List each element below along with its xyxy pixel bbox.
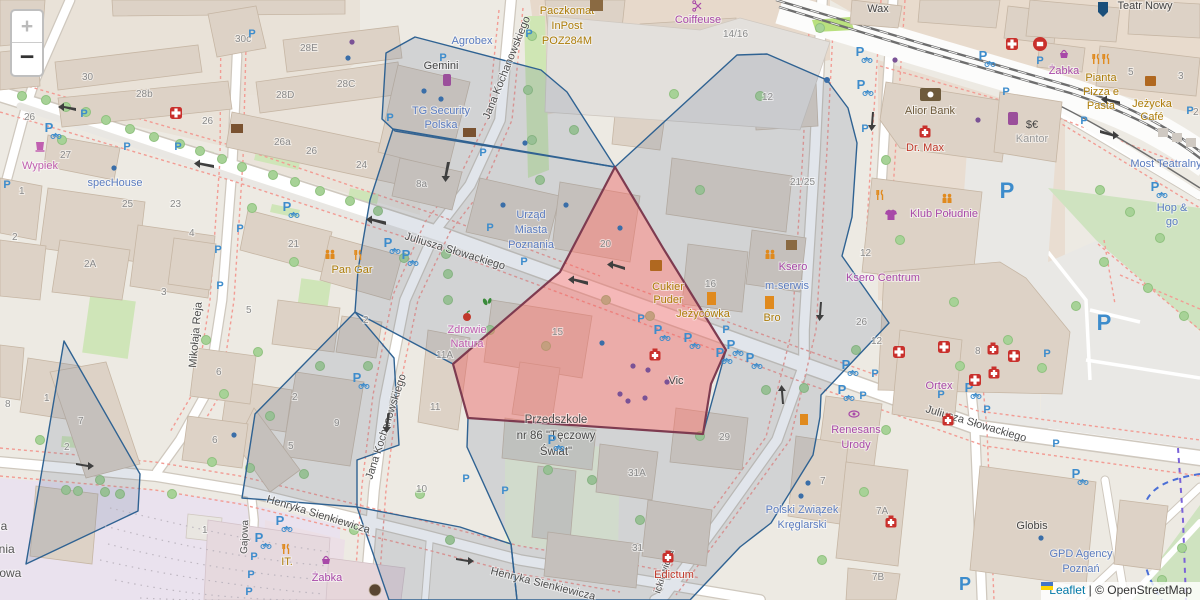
svg-text:Miasta: Miasta	[515, 224, 548, 236]
svg-text:Coiffeuse: Coiffeuse	[675, 14, 721, 26]
svg-text:Kantor: Kantor	[1016, 133, 1049, 145]
svg-text:na: na	[0, 519, 8, 533]
svg-text:5: 5	[246, 305, 252, 316]
svg-text:2: 2	[292, 392, 298, 403]
svg-text:28E: 28E	[300, 43, 318, 54]
svg-text:Edictum: Edictum	[654, 569, 694, 581]
svg-text:Polski Związek: Polski Związek	[766, 504, 839, 516]
svg-text:1: 1	[19, 186, 25, 197]
svg-text:TG Security: TG Security	[412, 105, 471, 117]
svg-text:1: 1	[202, 525, 208, 536]
svg-text:3: 3	[161, 287, 167, 298]
svg-text:IT.: IT.	[281, 556, 293, 568]
svg-text:9: 9	[334, 418, 340, 429]
svg-text:Żabka: Żabka	[1049, 64, 1080, 77]
svg-text:Natura: Natura	[450, 338, 484, 350]
svg-text:16: 16	[705, 279, 717, 290]
svg-text:24: 24	[356, 160, 368, 171]
svg-text:Żabka: Żabka	[312, 571, 343, 584]
svg-text:2: 2	[12, 232, 18, 243]
svg-text:Globis: Globis	[1016, 520, 1048, 532]
svg-text:7: 7	[820, 476, 826, 487]
svg-text:Paczkomat: Paczkomat	[540, 5, 594, 17]
svg-text:29: 29	[719, 432, 731, 443]
svg-text:Pianta: Pianta	[1085, 72, 1117, 84]
svg-text:8: 8	[975, 346, 981, 357]
svg-text:Alior Bank: Alior Bank	[905, 105, 956, 117]
svg-text:Most Teatralny: Most Teatralny	[1130, 158, 1200, 170]
svg-text:28b: 28b	[136, 89, 153, 100]
svg-text:Ksero: Ksero	[779, 261, 808, 273]
svg-text:25: 25	[122, 199, 134, 210]
svg-text:11: 11	[430, 402, 441, 413]
svg-text:26a: 26a	[274, 137, 291, 148]
svg-text:Kręglarski: Kręglarski	[778, 519, 827, 531]
svg-text:10: 10	[416, 484, 428, 495]
svg-text:12: 12	[860, 248, 872, 259]
svg-text:Urząd: Urząd	[516, 209, 545, 221]
svg-text:21/25: 21/25	[790, 177, 815, 188]
svg-text:26: 26	[306, 146, 318, 157]
svg-text:Poznań: Poznań	[1062, 563, 1099, 575]
svg-text:2: 2	[363, 315, 369, 326]
svg-text:Przedszkole: Przedszkole	[525, 414, 588, 426]
svg-text:2: 2	[64, 442, 70, 453]
svg-text:Bro: Bro	[763, 312, 780, 324]
svg-text:8: 8	[5, 399, 11, 410]
svg-text:P: P	[1000, 178, 1015, 203]
svg-text:12: 12	[871, 336, 883, 347]
svg-text:m-serwis: m-serwis	[765, 280, 809, 292]
svg-text:7B: 7B	[872, 572, 885, 583]
svg-text:20: 20	[600, 239, 612, 250]
svg-text:Hop &: Hop &	[1157, 202, 1188, 214]
svg-text:P: P	[959, 574, 971, 594]
svg-text:14/16: 14/16	[723, 29, 748, 40]
svg-text:Cukier: Cukier	[652, 281, 684, 293]
svg-text:26: 26	[856, 317, 868, 328]
svg-text:5: 5	[288, 441, 294, 452]
svg-text:4: 4	[189, 228, 195, 239]
svg-text:7A: 7A	[876, 506, 889, 517]
svg-text:Teatr Nowy: Teatr Nowy	[1117, 0, 1173, 12]
svg-text:dnia: dnia	[0, 542, 15, 556]
svg-text:Pizza e: Pizza e	[1083, 86, 1119, 98]
svg-text:26: 26	[202, 116, 214, 127]
svg-text:5: 5	[1128, 67, 1134, 78]
svg-text:26: 26	[24, 112, 36, 123]
svg-text:Jeżycówka: Jeżycówka	[676, 308, 731, 320]
svg-text:$€: $€	[1026, 119, 1038, 131]
svg-text:30: 30	[82, 72, 94, 83]
svg-text:7: 7	[78, 416, 84, 427]
svg-text:31A: 31A	[628, 468, 646, 479]
svg-text:2: 2	[1193, 107, 1199, 118]
svg-text:Gajowa: Gajowa	[239, 519, 251, 554]
svg-text:Puder: Puder	[653, 294, 683, 306]
svg-text:27: 27	[60, 150, 72, 161]
svg-text:28D: 28D	[276, 90, 294, 101]
svg-text:Pan Gar: Pan Gar	[332, 264, 373, 276]
svg-text:6: 6	[216, 367, 222, 378]
svg-text:11A: 11A	[436, 350, 453, 361]
svg-text:Renesans: Renesans	[831, 424, 881, 436]
svg-text:1: 1	[44, 393, 50, 404]
svg-text:go: go	[1166, 216, 1178, 228]
svg-text:GPD Agency: GPD Agency	[1050, 548, 1113, 560]
svg-text:Dr. Max: Dr. Max	[906, 142, 944, 154]
svg-text:Ksero Centrum: Ksero Centrum	[846, 272, 920, 284]
svg-text:Poznania: Poznania	[508, 239, 555, 251]
svg-text:15: 15	[552, 327, 564, 338]
svg-text:23: 23	[170, 199, 182, 210]
svg-text:Zdrowie: Zdrowie	[447, 324, 486, 336]
svg-text:6: 6	[212, 435, 218, 446]
svg-text:Urody: Urody	[841, 439, 871, 451]
svg-text:3: 3	[1178, 71, 1184, 82]
svg-text:specHouse: specHouse	[87, 177, 142, 189]
svg-text:28C: 28C	[337, 79, 355, 90]
svg-text:P: P	[1097, 310, 1112, 335]
svg-text:ajowa: ajowa	[0, 566, 22, 580]
svg-text:Agrobex: Agrobex	[452, 35, 493, 47]
svg-text:Vic: Vic	[668, 375, 684, 387]
svg-text:31: 31	[632, 543, 644, 554]
svg-text:Wax: Wax	[867, 3, 889, 15]
svg-text:Polska: Polska	[424, 119, 458, 131]
svg-text:8a: 8a	[416, 179, 428, 190]
svg-text:21: 21	[288, 239, 300, 250]
svg-text:Wypiek: Wypiek	[22, 160, 58, 172]
svg-text:12: 12	[762, 92, 774, 103]
svg-text:InPost: InPost	[551, 20, 582, 32]
svg-text:2A: 2A	[84, 259, 97, 270]
svg-text:POZ284M: POZ284M	[542, 35, 592, 47]
svg-text:Klub Południe: Klub Południe	[910, 208, 978, 220]
svg-text:Café: Café	[1140, 111, 1163, 123]
svg-text:Jeżycka: Jeżycka	[1132, 98, 1173, 110]
